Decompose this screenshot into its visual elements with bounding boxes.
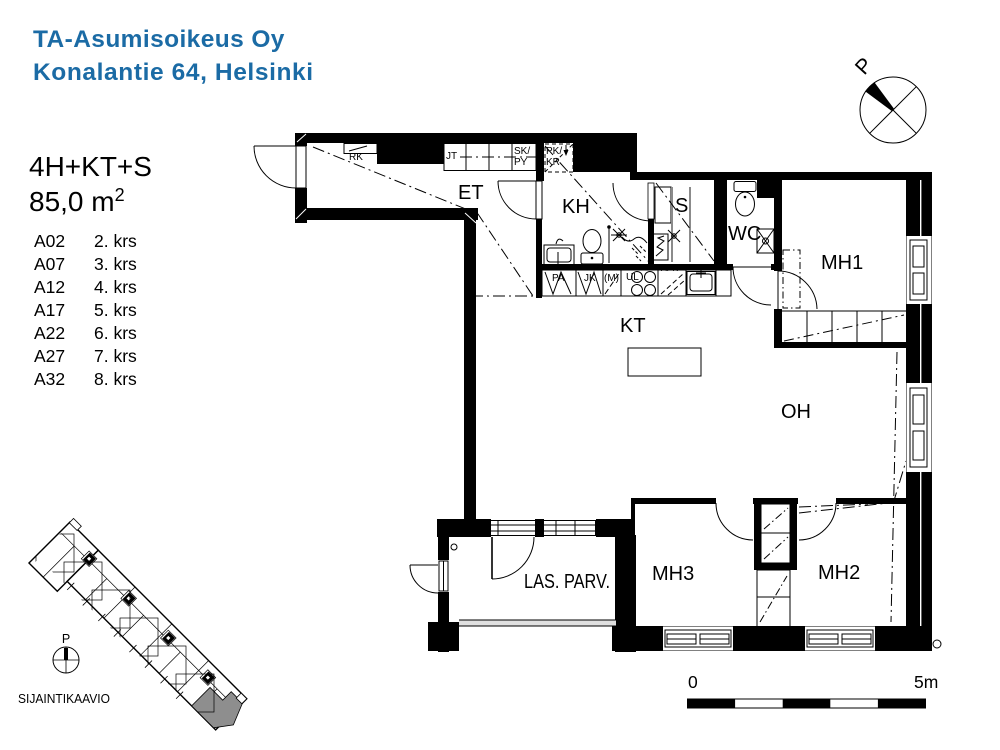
svg-text:RK: RK [349, 152, 363, 163]
svg-text:8. krs: 8. krs [94, 369, 137, 389]
svg-text:A32: A32 [34, 369, 65, 389]
svg-text:KR: KR [546, 157, 560, 168]
svg-text:(M): (M) [604, 273, 619, 284]
svg-text:SIJAINTIKAAVIO: SIJAINTIKAAVIO [18, 691, 110, 706]
svg-text:A12: A12 [34, 277, 65, 297]
svg-text:7. krs: 7. krs [94, 346, 137, 366]
svg-text:JK: JK [584, 273, 596, 284]
svg-text:A17: A17 [34, 300, 65, 320]
svg-text:MH1: MH1 [821, 252, 863, 274]
svg-text:KH: KH [562, 196, 590, 218]
svg-text:A22: A22 [34, 323, 65, 343]
svg-text:MH3: MH3 [652, 563, 694, 585]
svg-text:PY: PY [514, 157, 528, 168]
svg-text:APK: APK [661, 263, 678, 273]
svg-text:5m: 5m [914, 672, 938, 692]
svg-text:P: P [62, 632, 70, 646]
svg-text:OH: OH [781, 401, 811, 423]
svg-text:MH2: MH2 [818, 562, 860, 584]
svg-text:ET: ET [458, 182, 484, 204]
svg-text:0: 0 [688, 672, 698, 692]
svg-text:S: S [675, 195, 688, 217]
svg-text:UL: UL [626, 272, 639, 283]
svg-text:3. krs: 3. krs [94, 254, 137, 274]
svg-text:A07: A07 [34, 254, 65, 274]
svg-text:A02: A02 [34, 231, 65, 251]
svg-text:PA: PA [552, 273, 565, 284]
svg-text:Konalantie 64, Helsinki: Konalantie 64, Helsinki [33, 59, 314, 86]
svg-text:4H+KT+S: 4H+KT+S [29, 151, 152, 182]
svg-text:A27: A27 [34, 346, 65, 366]
svg-text:WC: WC [728, 223, 761, 245]
svg-text:6. krs: 6. krs [94, 323, 137, 343]
svg-text:LAS. PARV.: LAS. PARV. [524, 571, 610, 593]
svg-text:5. krs: 5. krs [94, 300, 137, 320]
svg-text:TA-Asumisoikeus Oy: TA-Asumisoikeus Oy [33, 26, 285, 53]
svg-text:SK/: SK/ [514, 146, 530, 157]
svg-text:KT: KT [620, 315, 646, 337]
svg-text:PK/: PK/ [546, 146, 562, 157]
svg-text:85,0 m2: 85,0 m2 [29, 185, 125, 217]
svg-text:2. krs: 2. krs [94, 231, 137, 251]
svg-text:JT: JT [446, 151, 457, 162]
svg-text:4. krs: 4. krs [94, 277, 137, 297]
